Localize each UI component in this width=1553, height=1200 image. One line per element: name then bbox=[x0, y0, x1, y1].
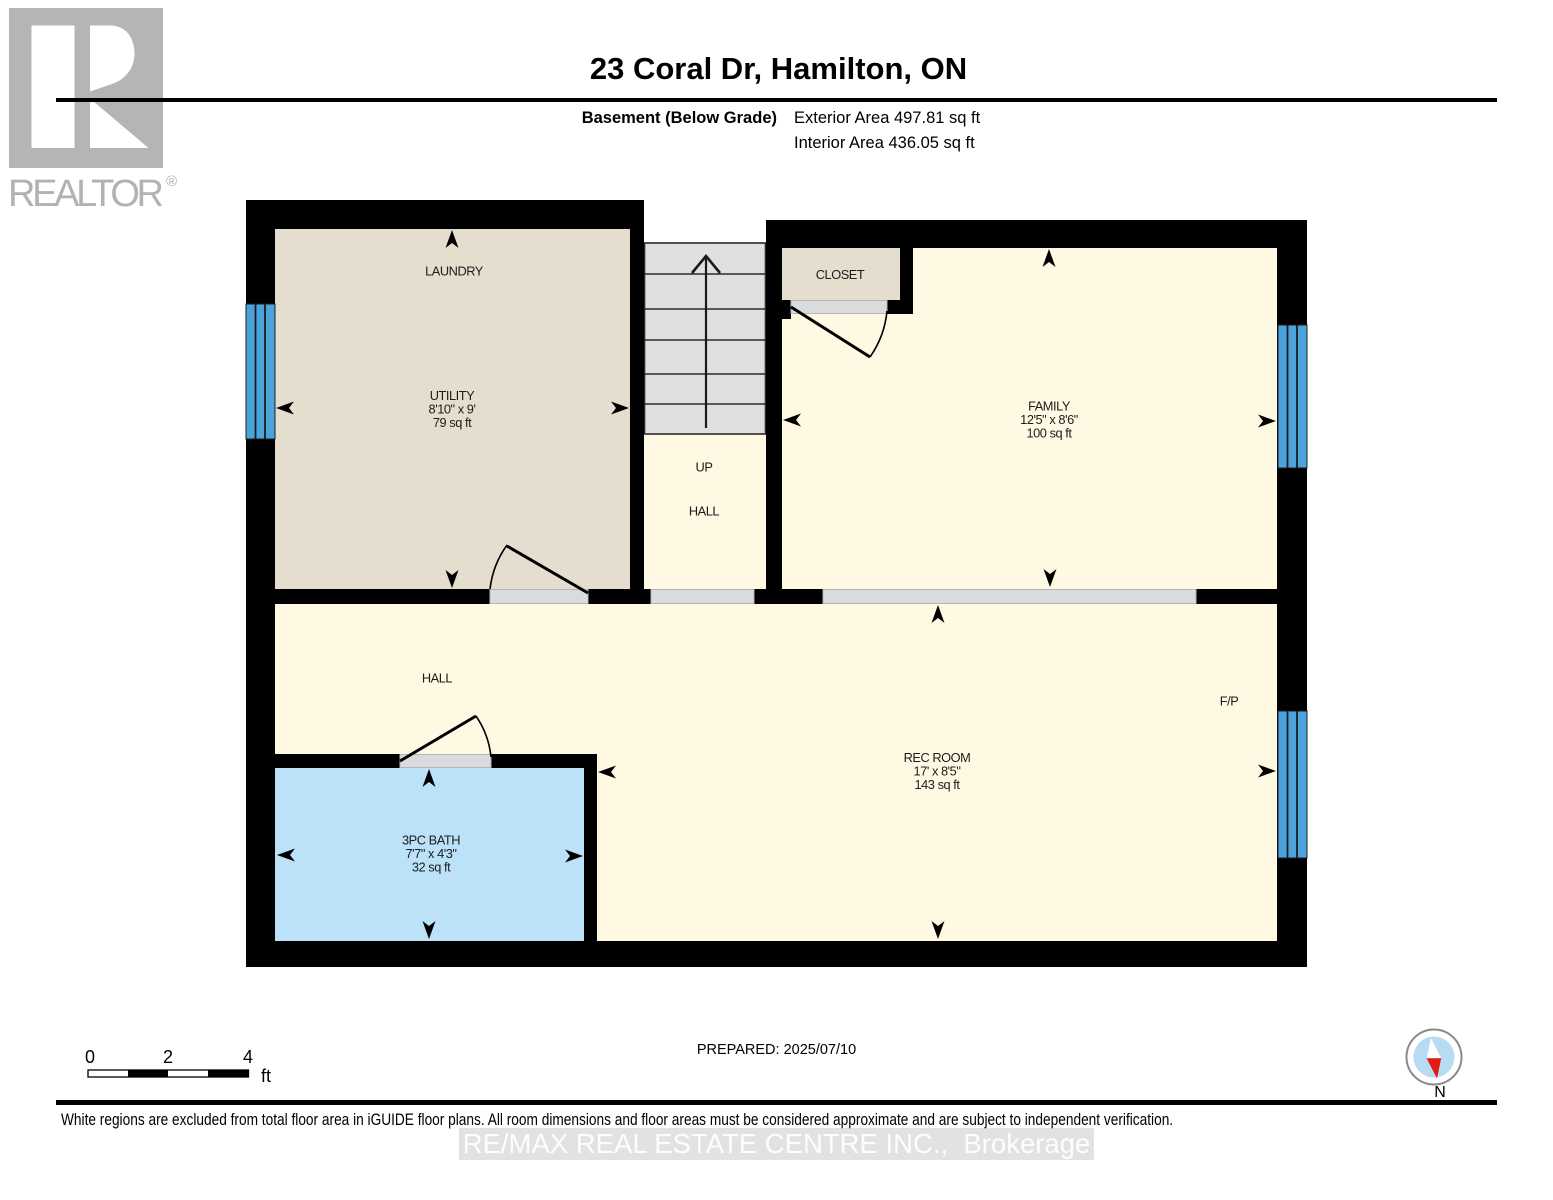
svg-text:LAUNDRY: LAUNDRY bbox=[425, 264, 484, 279]
svg-text:100 sq ft: 100 sq ft bbox=[1026, 426, 1072, 441]
svg-text:32 sq ft: 32 sq ft bbox=[412, 860, 451, 875]
svg-text:CLOSET: CLOSET bbox=[816, 267, 865, 282]
svg-text:79 sq ft: 79 sq ft bbox=[433, 415, 472, 430]
svg-text:HALL: HALL bbox=[689, 504, 720, 519]
svg-text:ft: ft bbox=[261, 1066, 271, 1086]
svg-text:N: N bbox=[1434, 1084, 1446, 1101]
svg-text:F/P: F/P bbox=[1220, 694, 1239, 709]
svg-text:UP: UP bbox=[696, 460, 713, 475]
svg-text:HALL: HALL bbox=[422, 671, 453, 686]
svg-text:143 sq ft: 143 sq ft bbox=[914, 777, 960, 792]
